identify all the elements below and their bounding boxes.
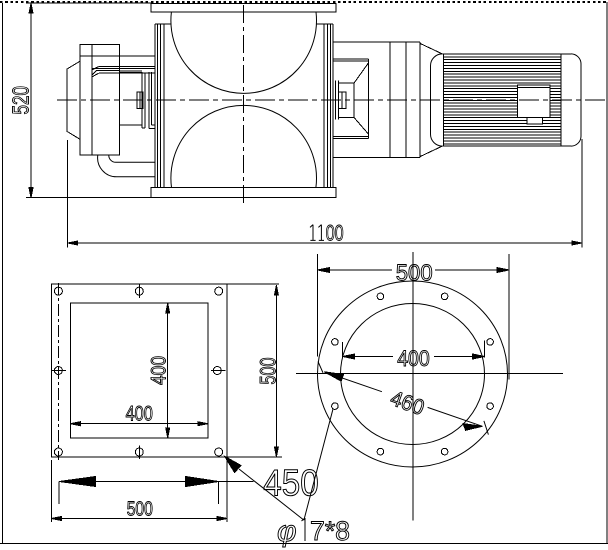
svg-text:400: 400 bbox=[397, 346, 430, 371]
svg-text:500: 500 bbox=[256, 358, 281, 385]
svg-text:400: 400 bbox=[147, 356, 171, 385]
svg-text:φ: φ bbox=[277, 515, 297, 548]
svg-text:500: 500 bbox=[396, 259, 433, 285]
svg-text:400: 400 bbox=[126, 402, 153, 425]
svg-text:7*8: 7*8 bbox=[310, 516, 350, 546]
svg-text:00: 00 bbox=[326, 221, 344, 246]
svg-text:520: 520 bbox=[8, 86, 34, 115]
svg-text:450: 450 bbox=[263, 463, 318, 504]
svg-text:500: 500 bbox=[127, 499, 153, 521]
svg-text:460: 460 bbox=[387, 386, 427, 420]
